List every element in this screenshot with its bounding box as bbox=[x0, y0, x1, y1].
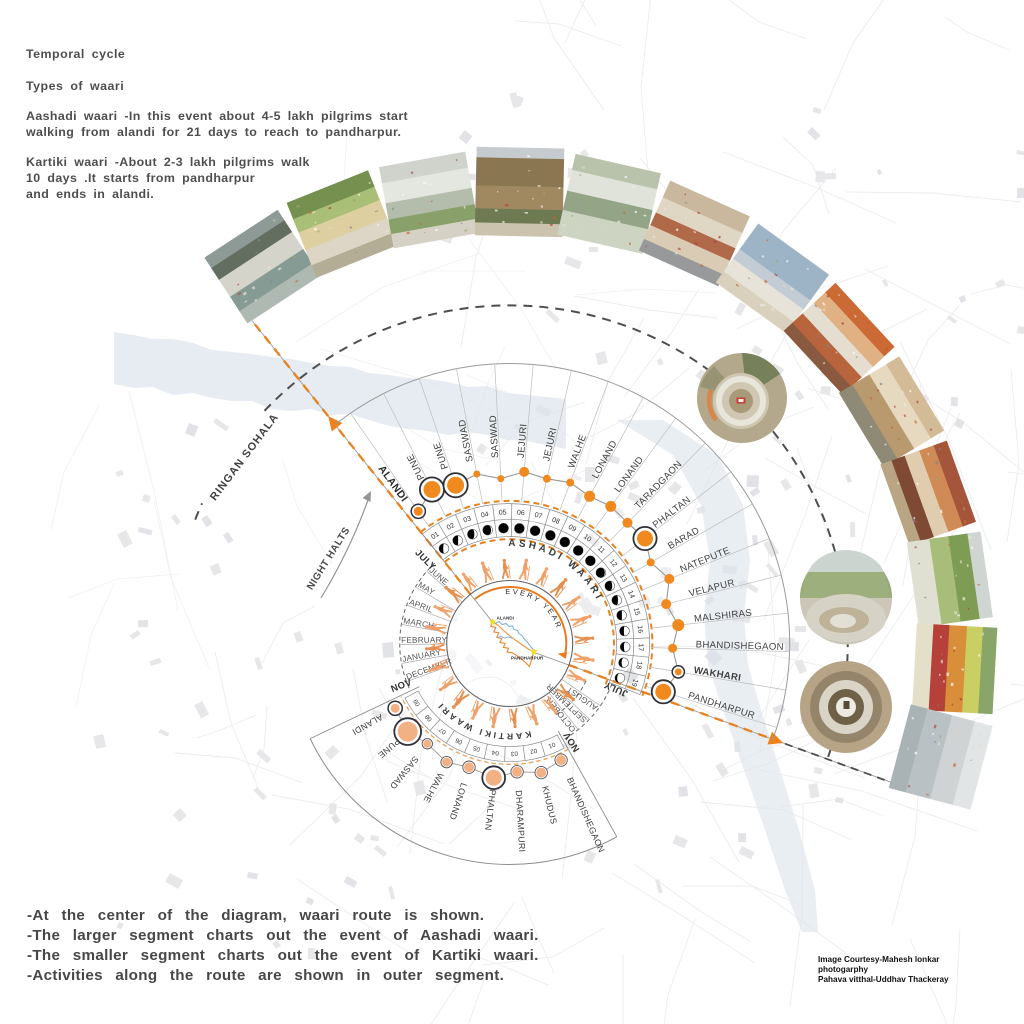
svg-text:17: 17 bbox=[637, 643, 644, 651]
svg-text:walking from alandi for 21 day: walking from alandi for 21 days to reach… bbox=[25, 125, 401, 139]
svg-text:04: 04 bbox=[480, 511, 489, 519]
svg-text:06: 06 bbox=[517, 510, 525, 518]
svg-text:04: 04 bbox=[491, 748, 499, 756]
svg-text:and ends in alandi.: and ends in alandi. bbox=[26, 187, 154, 201]
svg-text:PANDHARPUR: PANDHARPUR bbox=[511, 656, 544, 661]
svg-text:SASWAD: SASWAD bbox=[488, 415, 501, 459]
svg-text:Pahava vitthal-Uddhav Thackera: Pahava vitthal-Uddhav Thackeray bbox=[818, 975, 949, 984]
svg-text:-The smaller segment charts ou: -The smaller segment charts out the even… bbox=[27, 947, 539, 964]
svg-text:03: 03 bbox=[510, 750, 518, 757]
svg-text:Aashadi waari -In this event: Aashadi waari -In this event about 4-5 l… bbox=[26, 109, 408, 123]
svg-text:Types of waari: Types of waari bbox=[26, 79, 124, 93]
svg-text:Image Courtesy-Mahesh lonkar: Image Courtesy-Mahesh lonkar bbox=[818, 955, 940, 964]
svg-text:05: 05 bbox=[499, 509, 507, 516]
svg-text:-Activities along the route ar: -Activities along the route are shown in… bbox=[27, 967, 504, 984]
svg-text:-At the center of the diagram,: -At the center of the diagram, waari rou… bbox=[27, 907, 484, 924]
svg-text:ALANDI: ALANDI bbox=[497, 616, 514, 621]
svg-text:-The larger segment charts out: -The larger segment charts out the event… bbox=[27, 927, 539, 944]
svg-text:18: 18 bbox=[634, 661, 642, 670]
svg-text:10 days .It starts from pandha: 10 days .It starts from pandharpur bbox=[26, 171, 255, 185]
svg-text:photogarphy: photogarphy bbox=[818, 965, 868, 974]
svg-text:Kartiki waari -About 2-3 lakh: Kartiki waari -About 2-3 lakh pilgrims w… bbox=[26, 155, 310, 169]
svg-text:Temporal cycle: Temporal cycle bbox=[26, 47, 125, 61]
svg-text:16: 16 bbox=[636, 625, 644, 634]
